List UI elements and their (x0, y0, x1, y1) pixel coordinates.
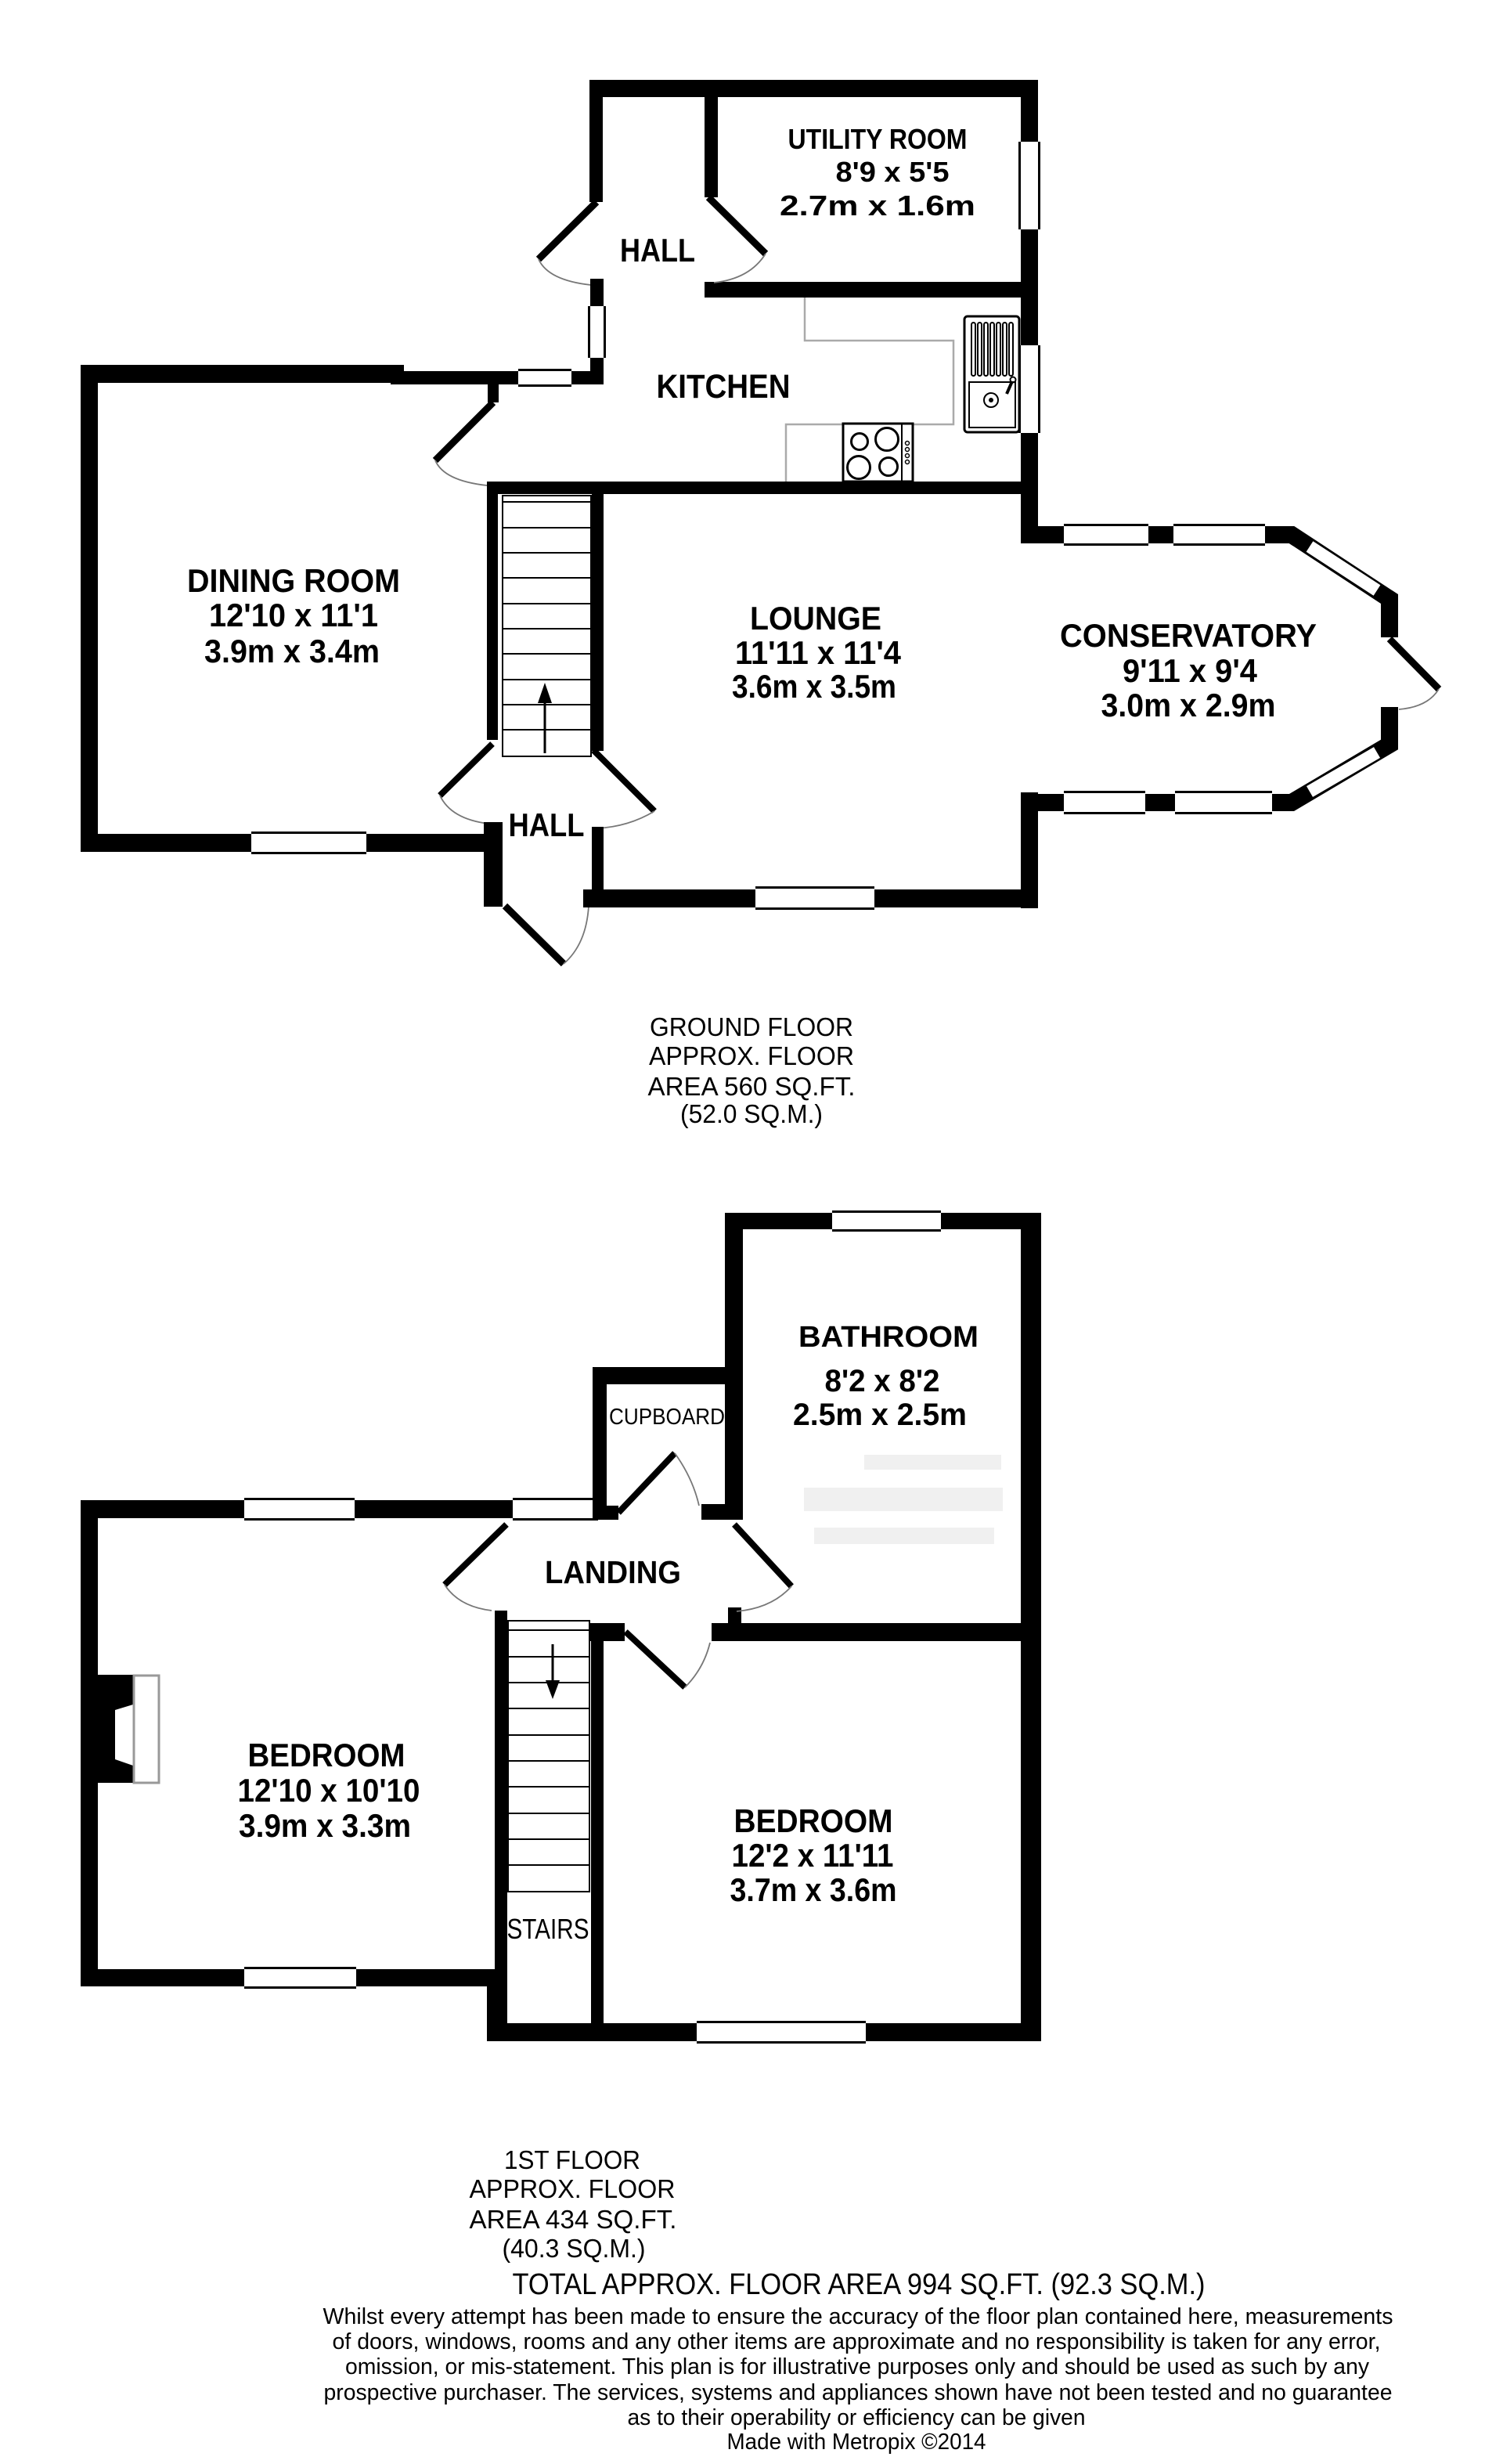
svg-text:BEDROOM: BEDROOM (734, 1802, 893, 1839)
svg-text:(40.3 SQ.M.): (40.3 SQ.M.) (503, 2234, 646, 2263)
svg-text:Made with Metropix ©2014: Made with Metropix ©2014 (727, 2430, 986, 2455)
svg-text:8'9 x 5'5: 8'9 x 5'5 (836, 156, 950, 188)
svg-text:DINING ROOM: DINING ROOM (187, 562, 400, 599)
svg-text:KITCHEN: KITCHEN (657, 368, 791, 406)
svg-text:12'2 x 11'11: 12'2 x 11'11 (732, 1837, 894, 1874)
svg-text:prospective purchaser. The ser: prospective purchaser. The services, sys… (324, 2380, 1393, 2405)
svg-text:11'11 x 11'4: 11'11 x 11'4 (735, 634, 902, 671)
svg-text:TOTAL APPROX. FLOOR AREA 994 S: TOTAL APPROX. FLOOR AREA 994 SQ.FT. (92.… (513, 2268, 1206, 2301)
svg-text:UTILITY ROOM: UTILITY ROOM (788, 123, 968, 155)
svg-text:Whilst every attempt has been: Whilst every attempt has been made to en… (323, 2304, 1393, 2329)
svg-text:CONSERVATORY: CONSERVATORY (1060, 617, 1317, 654)
svg-text:HALL: HALL (509, 806, 585, 843)
svg-text:LANDING: LANDING (545, 1554, 681, 1590)
svg-text:12'10 x 11'1: 12'10 x 11'1 (209, 597, 378, 633)
svg-text:APPROX. FLOOR: APPROX. FLOOR (649, 1041, 854, 1070)
svg-text:LOUNGE: LOUNGE (750, 600, 881, 637)
svg-text:HALL: HALL (620, 232, 695, 269)
svg-text:1ST FLOOR: 1ST FLOOR (504, 2145, 640, 2174)
svg-text:of doors, windows, rooms and a: of doors, windows, rooms and any other i… (333, 2329, 1381, 2354)
svg-text:omission, or mis-statement. Th: omission, or mis-statement. This plan is… (345, 2354, 1369, 2379)
svg-text:2.5m x 2.5m: 2.5m x 2.5m (793, 1398, 967, 1432)
svg-text:APPROX. FLOOR: APPROX. FLOOR (470, 2174, 676, 2203)
svg-text:3.7m x 3.6m: 3.7m x 3.6m (730, 1871, 897, 1908)
svg-text:9'11 x 9'4: 9'11 x 9'4 (1123, 652, 1258, 689)
svg-text:3.9m x 3.4m: 3.9m x 3.4m (204, 633, 380, 669)
svg-text:3.9m x 3.3m: 3.9m x 3.3m (239, 1807, 411, 1844)
svg-text:CUPBOARD: CUPBOARD (609, 1405, 725, 1430)
svg-text:as to their operability or eff: as to their operability or efficiency ca… (628, 2405, 1086, 2430)
svg-text:GROUND FLOOR: GROUND FLOOR (650, 1012, 853, 1041)
svg-text:2.7m x 1.6m: 2.7m x 1.6m (780, 189, 975, 222)
svg-text:8'2 x 8'2: 8'2 x 8'2 (825, 1364, 940, 1398)
svg-text:BATHROOM: BATHROOM (798, 1321, 979, 1354)
svg-text:AREA 560 SQ.FT.: AREA 560 SQ.FT. (648, 1072, 856, 1101)
svg-text:12'10 x 10'10: 12'10 x 10'10 (238, 1772, 420, 1809)
svg-text:(52.0 SQ.M.): (52.0 SQ.M.) (680, 1099, 823, 1128)
svg-text:STAIRS: STAIRS (507, 1913, 589, 1945)
svg-text:AREA 434 SQ.FT.: AREA 434 SQ.FT. (470, 2205, 677, 2234)
svg-text:3.6m x 3.5m: 3.6m x 3.5m (732, 668, 896, 705)
svg-text:BEDROOM: BEDROOM (248, 1737, 405, 1773)
svg-text:3.0m x 2.9m: 3.0m x 2.9m (1101, 687, 1276, 723)
